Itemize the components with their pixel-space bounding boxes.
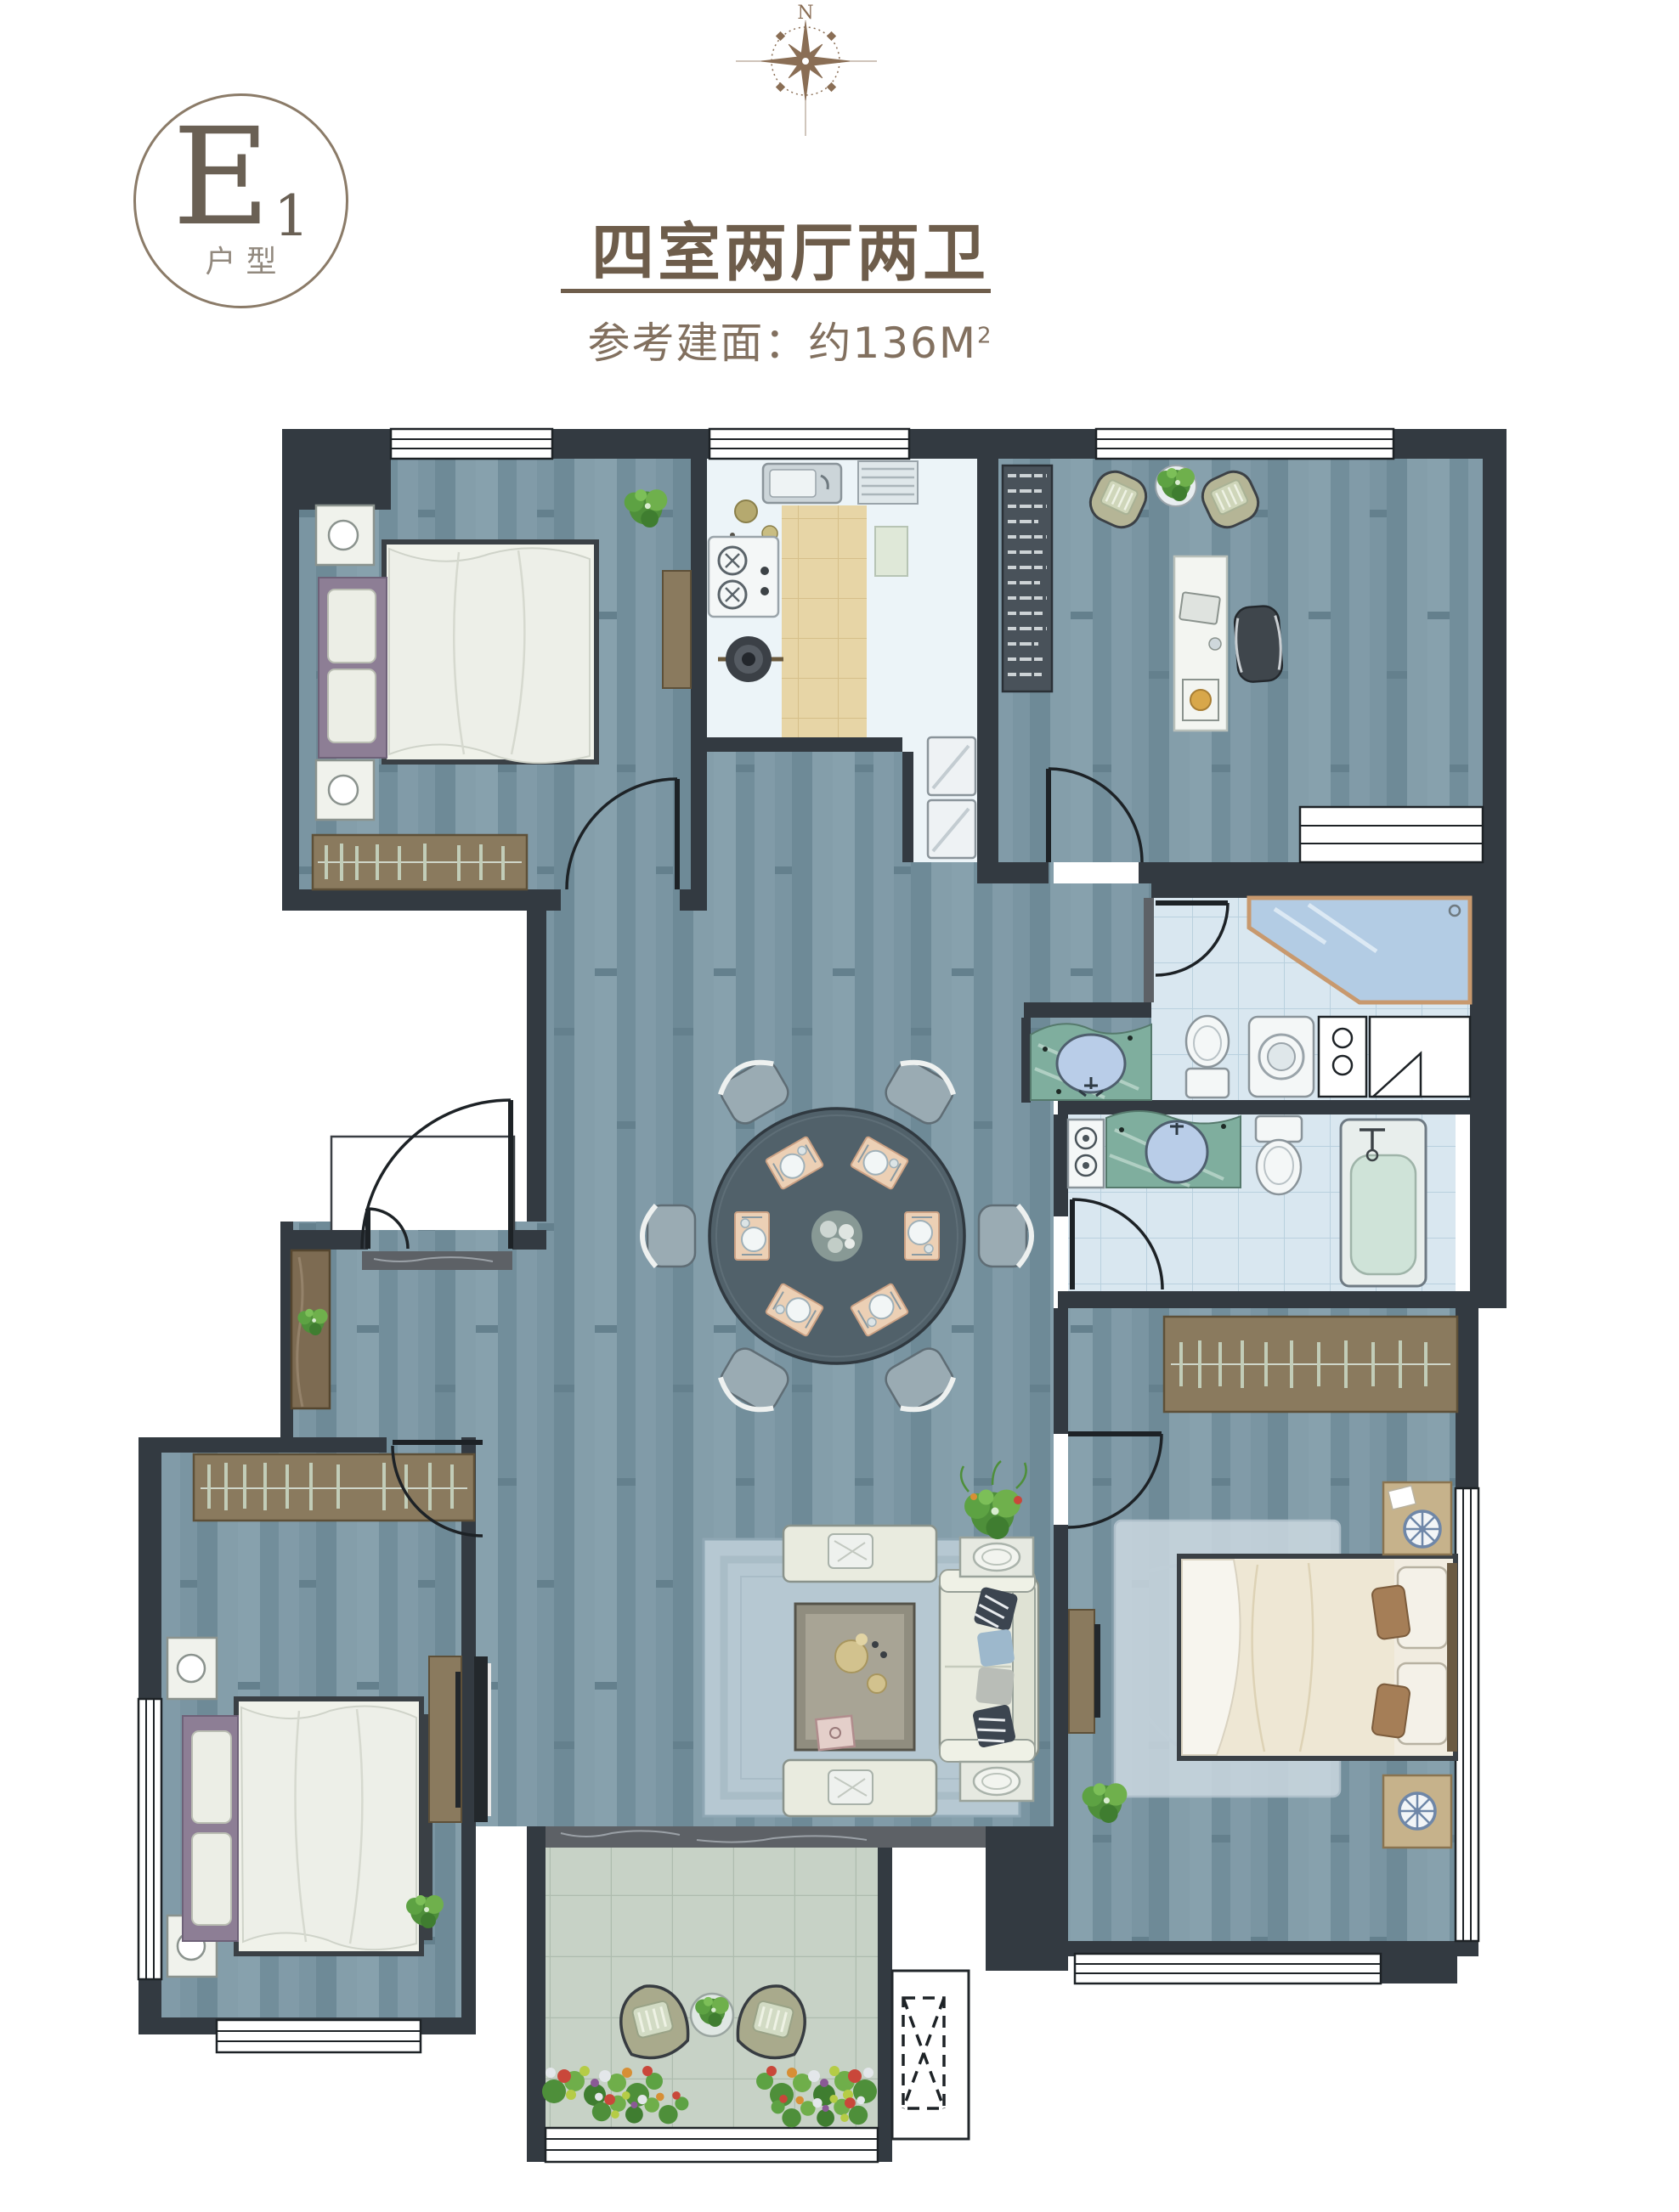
elevator-shaft [892,1971,969,2139]
floorplan-drawing [85,408,1546,2183]
bench-seat [783,1526,936,1582]
unit-type-label: 户型 [205,237,286,281]
gas-hob [709,537,778,617]
window-kitchen-top [709,429,909,459]
bench-seat [783,1760,936,1816]
living-tv-wall [474,1656,491,1822]
dining-chair [979,1205,1032,1267]
double-bed [183,1699,432,1954]
balcony-table [691,1994,733,2036]
nightstand [1383,1482,1451,1555]
window-study-top [1096,429,1394,459]
area-unit: M [939,319,977,368]
area-subtitle: 参考建面：约136M2 [510,309,1071,370]
wardrobe [313,835,527,889]
unit-badge: E 1 户型 [133,93,348,308]
nightstand [1383,1775,1451,1848]
wardrobe [194,1454,474,1521]
side-table [960,1762,1033,1801]
side-table [960,1538,1033,1577]
master-wardrobe [1164,1317,1457,1412]
kitchen-tile-path [782,505,867,748]
tv-dresser [429,1656,461,1822]
plant-pot [1156,466,1196,506]
floorplan-page: E 1 户型 [0,0,1679,2212]
area-value: 136 [852,319,938,368]
window-bedroom2-south [217,2020,421,2052]
window-bedroom2-west [139,1699,161,1979]
toilet [1256,1116,1302,1194]
toilet [1186,1016,1229,1098]
entry-porch [331,1137,514,1230]
master-tv-cabinet [1069,1610,1100,1733]
bathtub [1341,1120,1426,1286]
window-master-east [1456,1488,1478,1941]
nightstand [316,505,374,565]
compass-north-label: N [797,3,813,24]
hall-vanity [1031,1024,1151,1100]
centerpiece [811,1210,862,1261]
compass-icon: N [729,3,884,143]
office-chair [1234,605,1283,682]
coffee-table [795,1604,914,1750]
sofa [940,1570,1038,1762]
nightstand [167,1638,217,1699]
ensuite-vanity [1106,1111,1241,1188]
unit-number: 1 [274,193,309,240]
kitchen-cabinet [875,527,907,576]
side-cabinet [663,571,691,688]
place-setting [735,1212,769,1260]
area-exponent: 2 [977,323,993,348]
bath-cabinet [1319,1017,1470,1097]
page-title: 四室两厅两卫 [510,202,1071,293]
desk [1174,556,1227,731]
master-bed [1179,1556,1457,1758]
title-divider [561,289,991,293]
washing-machine [1249,1017,1314,1097]
ac-ledge [1300,807,1483,862]
water-heater [1068,1120,1104,1188]
place-setting [905,1212,939,1260]
dining-chair [642,1205,695,1267]
window-balcony-south [546,2128,878,2162]
window-master-south [1075,1954,1381,1983]
dish-rack [858,461,918,504]
kitchen-sink [763,464,841,503]
bookshelf [1003,466,1052,691]
balcony-sill [546,1826,986,1848]
area-prefix: 参考建面：约 [587,319,852,368]
window-bedroom1-top [391,429,552,459]
compass-star [761,22,850,100]
nightstand [316,760,374,820]
unit-letter: E [172,121,270,234]
